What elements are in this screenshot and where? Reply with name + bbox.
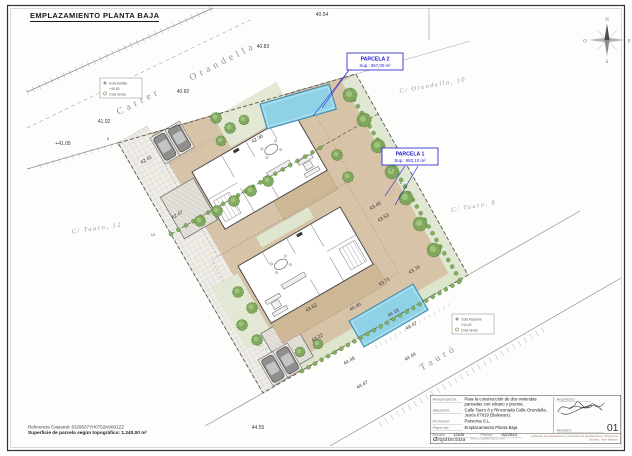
- tree-icon: [229, 196, 240, 207]
- page-title: EMPLAZAMIENTO PLANTA BAJA: [30, 11, 159, 22]
- studio-credits: gabinete de arquitectura y proyectos de …: [531, 435, 618, 442]
- compass-rose: N E S O: [583, 18, 630, 65]
- hedge-dot: [418, 302, 422, 306]
- hedge-dot: [431, 295, 435, 299]
- elevation-label: 44.44: [404, 351, 418, 363]
- tree-icon: [247, 303, 258, 314]
- compass-n: N: [605, 18, 609, 23]
- field-label-plano: Plano de:: [433, 425, 463, 431]
- tree-icon: [212, 206, 223, 217]
- tree-icon: [239, 115, 249, 125]
- elevation-label: 40.54: [316, 12, 329, 18]
- hedge-dot: [430, 231, 434, 235]
- hedge-dot: [333, 350, 337, 354]
- tree-icon: [263, 176, 274, 187]
- svg-text:Cota Rasante: Cota Rasante: [461, 318, 482, 322]
- parcela-2-name: PARCELA 2: [361, 57, 390, 63]
- tree-icon: [233, 287, 244, 298]
- legend-box-1: Cota Asfalto +40,50 Cota Verde: [100, 78, 142, 98]
- hedge-dot: [313, 361, 317, 365]
- hedge-dot: [450, 265, 454, 269]
- hedge-dot: [206, 210, 210, 214]
- parcela-1-sup: Sup.: 683,10 m²: [394, 158, 426, 163]
- parcela-2-sup: Sup.: 657,00 m²: [359, 63, 391, 68]
- hedge-dot: [281, 167, 285, 171]
- title-block: Anteproyecto: Para la construcción de do…: [430, 395, 621, 444]
- hedge-dot: [454, 271, 458, 275]
- svg-text:+40,50: +40,50: [109, 87, 120, 91]
- tree-icon: [211, 113, 222, 124]
- compass-e: E: [627, 40, 630, 45]
- hedge-dot: [320, 358, 324, 362]
- compass-s: S: [606, 60, 609, 65]
- hedge-dot: [415, 204, 419, 208]
- hedge-dot: [296, 159, 300, 163]
- hedge-dot: [310, 150, 314, 154]
- tree-icon: [237, 320, 248, 331]
- elevation-label: 40.82: [177, 89, 190, 95]
- elevation-label: 41.02: [98, 119, 111, 125]
- hedge-dot: [346, 343, 350, 347]
- sheet-number: 01: [607, 424, 619, 433]
- svg-text:Cota Asfalto: Cota Asfalto: [109, 82, 127, 86]
- title-block-fields: Anteproyecto: Para la construcción de do…: [433, 397, 552, 438]
- hedge-dot: [446, 258, 450, 262]
- tree-icon: [413, 217, 427, 231]
- street-name-label: C/ Tauro, 8: [451, 199, 497, 214]
- svg-text:+44,40: +44,40: [461, 323, 472, 327]
- hedge-dot: [169, 232, 173, 236]
- hedge-dot: [442, 251, 446, 255]
- hedge-dot: [318, 146, 322, 150]
- parcela-1-name: PARCELA 1: [396, 152, 425, 158]
- hedge-dot: [434, 238, 438, 242]
- hedge-dot: [450, 284, 454, 288]
- sidewalk-ticks: [40, 143, 120, 166]
- tree-icon: [216, 136, 226, 146]
- hedge-dot: [359, 336, 363, 340]
- svg-text:Cota Verde: Cota Verde: [461, 329, 478, 333]
- street-name-label: C/ Tauro, 12: [71, 222, 122, 236]
- hedge-dot: [303, 155, 307, 159]
- compass-needle: [605, 24, 610, 40]
- street-name-label: Tauró: [418, 343, 459, 373]
- hedge-dot: [372, 328, 376, 332]
- street-name-label: C/ Orendella, 10: [399, 76, 467, 95]
- hedge-dot: [405, 310, 409, 314]
- hedge-dot: [258, 180, 262, 184]
- hedge-dot: [378, 324, 382, 328]
- hedge-dot: [424, 298, 428, 302]
- site-plan-canvas: PARCELA 2 Sup.: 657,00 m² PARCELA 1 Sup.…: [0, 0, 632, 456]
- tree-icon: [399, 191, 413, 205]
- signature: [554, 397, 614, 417]
- studio-logo: arquitectura: [433, 434, 465, 444]
- hedge-dot: [288, 163, 292, 167]
- hedge-dot: [356, 104, 360, 108]
- svg-text:Cota Verde: Cota Verde: [109, 93, 126, 97]
- field-label-promotor: Promotor:: [433, 419, 463, 425]
- elevation-label: +41.05: [55, 141, 71, 147]
- tree-icon: [343, 88, 357, 102]
- hedge-dot: [176, 228, 180, 232]
- hedge-dot: [411, 306, 415, 310]
- field-label-situacion: Situación:: [433, 408, 463, 414]
- hedge-dot: [385, 321, 389, 325]
- tree-icon: [252, 335, 263, 346]
- hedge-dot: [391, 317, 395, 321]
- hedge-dot: [352, 339, 356, 343]
- tree-icon: [195, 216, 206, 227]
- title-block-footer: arquitectura www.arquitectura.com gabine…: [431, 433, 621, 444]
- tree-icon: [225, 123, 236, 134]
- architect-box: Arquitecto: Número: 01: [554, 397, 619, 433]
- hedge-dot: [300, 369, 304, 373]
- legend-box-2: Cota Rasante +44,40 Cota Verde: [452, 314, 494, 334]
- hedge-dot: [398, 313, 402, 317]
- tree-icon: [357, 113, 371, 127]
- boundary-point-number: 8: [107, 136, 110, 141]
- hedge-dot: [339, 347, 343, 351]
- hedge-dot: [184, 223, 188, 227]
- tree-icon: [246, 186, 257, 197]
- field-value-anteproyecto: Para la construcción de dos viviendaspar…: [465, 397, 537, 407]
- field-value-situacion: Calle Tauro 8 y Rinconada Calle Orendell…: [465, 408, 547, 418]
- hedge-dot: [273, 172, 277, 176]
- hedge-dot: [221, 202, 225, 206]
- hedge-dot: [457, 280, 461, 284]
- field-value-promotor: Parserva S.L.: [465, 419, 491, 425]
- tree-icon: [427, 243, 441, 257]
- plot-area-note: Superficie de parcela según topográfico:…: [28, 430, 288, 436]
- hedge-dot: [371, 131, 375, 135]
- street-name-label: Orandella: [188, 41, 258, 83]
- field-value-plano: Emplazamiento Planta Baja: [465, 425, 518, 431]
- tree-icon: [295, 347, 305, 357]
- tree-icon: [343, 172, 354, 183]
- boundary-point-number: 10: [151, 232, 156, 237]
- compass-w: O: [583, 40, 587, 45]
- elevation-label: 40.83: [257, 44, 270, 50]
- drawing-sheet: PARCELA 2 Sup.: 657,00 m² PARCELA 1 Sup.…: [0, 0, 632, 456]
- hedge-dot: [444, 287, 448, 291]
- hedge-dot: [419, 211, 423, 215]
- tree-icon: [332, 150, 343, 161]
- hedge-dot: [365, 332, 369, 336]
- hedge-dot: [306, 365, 310, 369]
- hedge-dot: [437, 291, 441, 295]
- hedge-dot: [326, 354, 330, 358]
- elevation-label: 44.47: [356, 379, 370, 391]
- studio-website: www.arquitectura.com: [470, 437, 504, 441]
- elevation-label: 44.46: [343, 355, 357, 367]
- field-label-anteproyecto: Anteproyecto:: [433, 397, 463, 403]
- footnotes: Referencia Catastral: 6329507YH0752N0001…: [28, 424, 288, 436]
